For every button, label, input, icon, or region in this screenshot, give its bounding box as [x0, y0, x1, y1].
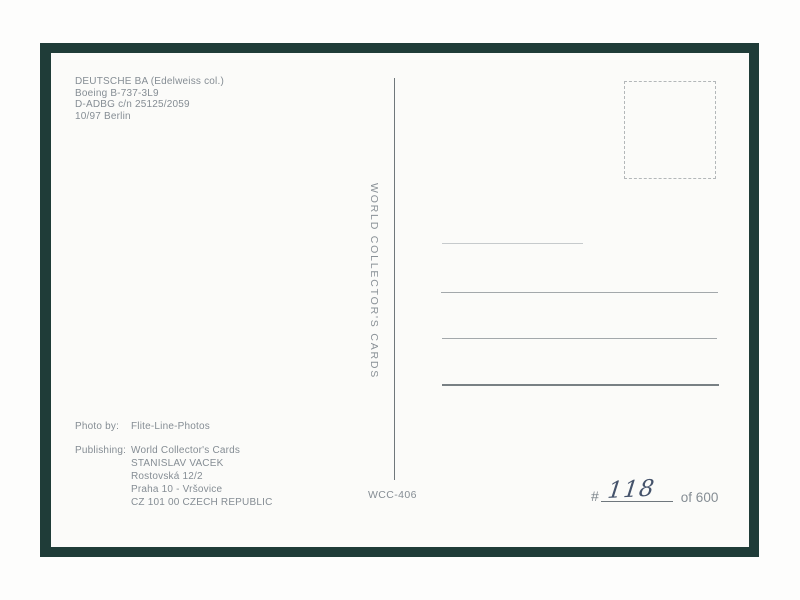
address-line-4: [442, 384, 719, 386]
photo-credit-label: Photo by:: [75, 420, 131, 433]
aircraft-info-line-type: Boeing B-737-3L9: [75, 88, 224, 100]
address-line-3: [442, 338, 717, 339]
postcard-scan-border: DEUTSCHE BA (Edelweiss col.) Boeing B-73…: [40, 43, 759, 557]
photo-credit-value: Flite-Line-Photos: [131, 420, 210, 433]
brand-vertical-text: WORLD COLLECTOR'S CARDS: [368, 183, 380, 393]
edition-hash-symbol: #: [591, 488, 599, 504]
stamp-box: [624, 81, 716, 179]
divider-line: [394, 78, 395, 480]
publishing-credit-row: Publishing: World Collector's Cards STAN…: [75, 444, 273, 509]
aircraft-info-line-airline: DEUTSCHE BA (Edelweiss col.): [75, 76, 224, 88]
credits-block: Photo by: Flite-Line-Photos Publishing: …: [75, 420, 273, 509]
address-line-2: [441, 292, 718, 293]
publishing-line-name: STANISLAV VACEK: [131, 457, 273, 470]
edition-number-underline: 118: [601, 478, 673, 502]
edition-block: # 118 of 600: [591, 476, 718, 502]
edition-handwritten-number: 118: [606, 476, 656, 504]
postcard-back: DEUTSCHE BA (Edelweiss col.) Boeing B-73…: [51, 53, 749, 547]
publishing-line-company: World Collector's Cards: [131, 444, 273, 457]
aircraft-info-block: DEUTSCHE BA (Edelweiss col.) Boeing B-73…: [75, 76, 224, 123]
scan-page: { "postcard": { "aircraft_info": { "line…: [0, 0, 800, 600]
publishing-label: Publishing:: [75, 444, 131, 509]
aircraft-info-line-registration: D-ADBG c/n 25125/2059: [75, 99, 224, 111]
edition-total: of 600: [681, 490, 719, 505]
publishing-lines: World Collector's Cards STANISLAV VACEK …: [131, 444, 273, 509]
address-line-1: [442, 243, 583, 244]
publishing-line-street: Rostovská 12/2: [131, 470, 273, 483]
card-code: WCC-406: [368, 489, 417, 501]
photo-credit-row: Photo by: Flite-Line-Photos: [75, 420, 273, 433]
publishing-line-country: CZ 101 00 CZECH REPUBLIC: [131, 496, 273, 509]
publishing-line-city: Praha 10 - Vršovice: [131, 483, 273, 496]
aircraft-info-line-date-place: 10/97 Berlin: [75, 111, 224, 123]
